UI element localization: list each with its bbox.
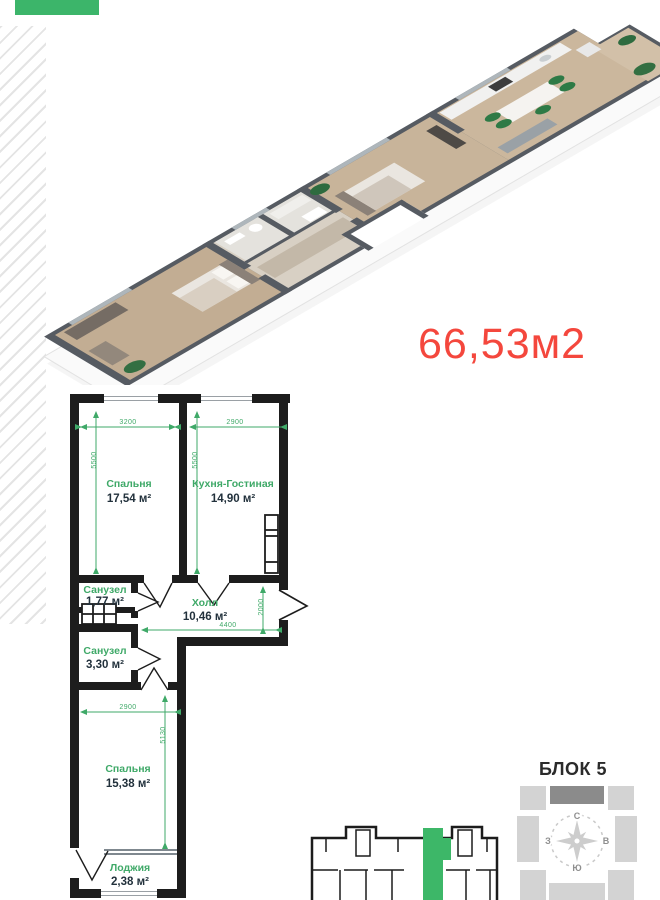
- apartment-plan-page: 66,53м2: [0, 0, 660, 900]
- room-name-kitchen: Кухня-Гостиная: [192, 478, 274, 490]
- room-name-loggia: Лоджия: [110, 862, 150, 874]
- dim-3200: 3200: [119, 419, 136, 426]
- key-plan-highlighted-unit: [423, 828, 443, 900]
- block-highlighted: [550, 786, 604, 804]
- compass-icon: С Ю З В: [545, 811, 610, 873]
- dim-2000: 2000: [258, 598, 265, 615]
- room-name-bedroom1: Спальня: [106, 478, 151, 490]
- room-area-hall: 10,46 м²: [183, 611, 227, 623]
- room-area-bedroom1: 17,54 м²: [107, 493, 151, 505]
- room-name-bedroom2: Спальня: [105, 763, 150, 775]
- block-diagram: БЛОК 5 С Ю З В: [517, 759, 637, 900]
- room-area-bedroom2: 15,38 м²: [106, 778, 150, 790]
- dim-2900-bottom: 2900: [119, 704, 136, 711]
- room-area-bath1: 1,77 м²: [86, 596, 124, 608]
- compass-east-label: В: [603, 836, 610, 846]
- dim-5130: 5130: [160, 726, 167, 743]
- room-area-bath2: 3,30 м²: [86, 659, 124, 671]
- plan-overlay: 3200 2900 5500 5500 4400 2000 2900 5130 …: [0, 0, 660, 900]
- dim-2900-top: 2900: [226, 419, 243, 426]
- room-area-loggia: 2,38 м²: [111, 876, 149, 888]
- room-name-bath2: Санузел: [83, 645, 126, 657]
- room-area-kitchen: 14,90 м²: [211, 493, 255, 505]
- block-title: БЛОК 5: [539, 759, 607, 779]
- room-name-bath1: Санузел: [83, 584, 126, 596]
- dim-4400: 4400: [219, 622, 236, 629]
- key-plan: [312, 827, 497, 900]
- room-name-hall: Холл: [192, 597, 218, 609]
- compass-south-label: Ю: [572, 863, 581, 873]
- key-plan-highlighted-unit-step: [443, 838, 451, 860]
- dim-5500-left: 5500: [91, 451, 98, 468]
- compass-west-label: З: [545, 836, 551, 846]
- dim-5500-mid: 5500: [192, 451, 199, 468]
- compass-north-label: С: [574, 811, 581, 821]
